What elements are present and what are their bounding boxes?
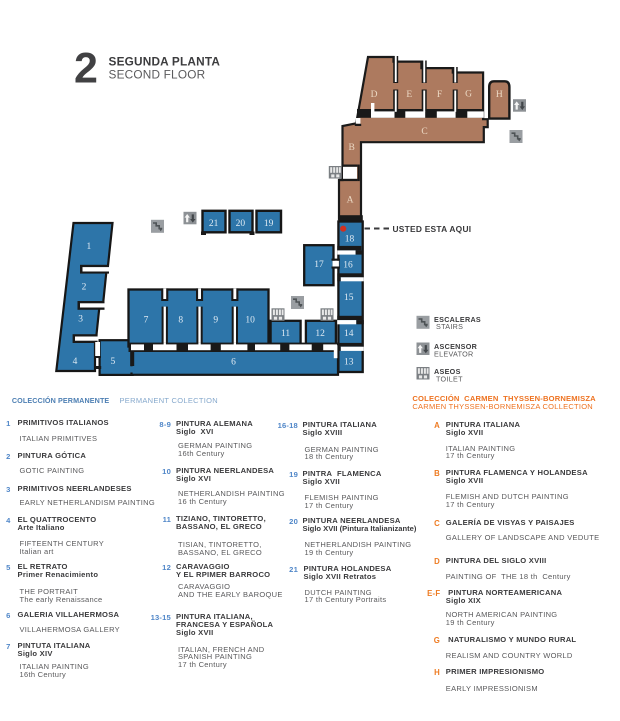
svg-text:G: G	[465, 90, 472, 100]
svg-text:ELEVATOR: ELEVATOR	[434, 350, 474, 359]
svg-text:E: E	[406, 90, 412, 100]
svg-text:STAIRS: STAIRS	[436, 322, 463, 331]
svg-text:B: B	[349, 143, 355, 153]
svg-text:SEGUNDA PLANTA: SEGUNDA PLANTA	[109, 55, 221, 69]
svg-text:TOILET: TOILET	[436, 375, 463, 384]
svg-text:12: 12	[315, 329, 325, 339]
svg-text:20: 20	[236, 219, 246, 229]
svg-text:18: 18	[345, 235, 355, 245]
svg-text:21: 21	[209, 219, 219, 229]
svg-text:8: 8	[178, 315, 183, 325]
svg-text:15: 15	[344, 293, 354, 303]
svg-text:17: 17	[314, 260, 324, 270]
svg-text:2: 2	[74, 45, 98, 93]
svg-text:H: H	[496, 90, 503, 100]
svg-text:2: 2	[82, 283, 87, 293]
svg-text:9: 9	[213, 315, 218, 325]
svg-text:F: F	[437, 90, 442, 100]
svg-text:6: 6	[231, 358, 236, 368]
svg-text:14: 14	[344, 329, 354, 339]
svg-text:19: 19	[264, 219, 274, 229]
svg-text:7: 7	[144, 315, 149, 325]
svg-text:SECOND FLOOR: SECOND FLOOR	[109, 68, 206, 82]
svg-text:13: 13	[344, 358, 354, 368]
svg-text:4: 4	[73, 357, 78, 367]
svg-text:D: D	[371, 90, 378, 100]
svg-text:A: A	[347, 196, 354, 206]
svg-text:USTED ESTA AQUI: USTED ESTA AQUI	[393, 224, 472, 234]
svg-text:C: C	[421, 127, 427, 137]
svg-text:3: 3	[78, 315, 83, 325]
svg-text:10: 10	[245, 315, 255, 325]
svg-text:5: 5	[111, 357, 116, 367]
svg-text:11: 11	[281, 329, 290, 339]
svg-text:16: 16	[343, 261, 353, 271]
svg-text:1: 1	[87, 242, 92, 252]
